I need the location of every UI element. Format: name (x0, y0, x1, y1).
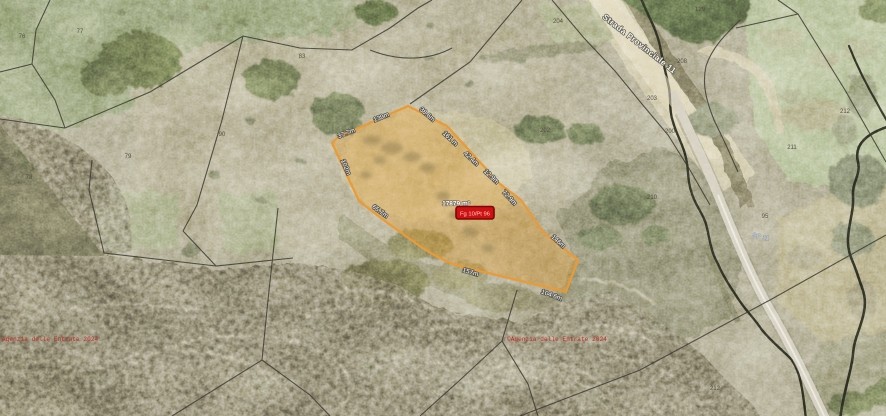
svg-text:79: 79 (125, 154, 132, 160)
svg-text:77: 77 (77, 29, 84, 35)
svg-text:203: 203 (647, 96, 658, 102)
svg-text:90: 90 (219, 132, 226, 138)
svg-text:202: 202 (540, 128, 551, 134)
svg-text:83: 83 (299, 54, 306, 60)
svg-text:210: 210 (647, 195, 658, 201)
svg-text:©Agenzia delle Entrate 2024: ©Agenzia delle Entrate 2024 (507, 336, 607, 343)
svg-text:200: 200 (665, 129, 676, 135)
svg-text:212: 212 (710, 386, 721, 392)
svg-text:129: 129 (695, 7, 706, 13)
svg-text:208: 208 (677, 59, 688, 65)
svg-text:76: 76 (19, 34, 26, 40)
svg-text:Agenzia delle Entrate 2024: Agenzia delle Entrate 2024 (2, 336, 99, 343)
svg-text:212: 212 (840, 109, 851, 115)
svg-text:Fg 10/Pt 96: Fg 10/Pt 96 (460, 212, 490, 218)
svg-text:78: 78 (26, 175, 33, 181)
svg-text:95: 95 (762, 214, 769, 220)
svg-text:204: 204 (553, 19, 564, 25)
svg-text:211: 211 (787, 145, 797, 151)
